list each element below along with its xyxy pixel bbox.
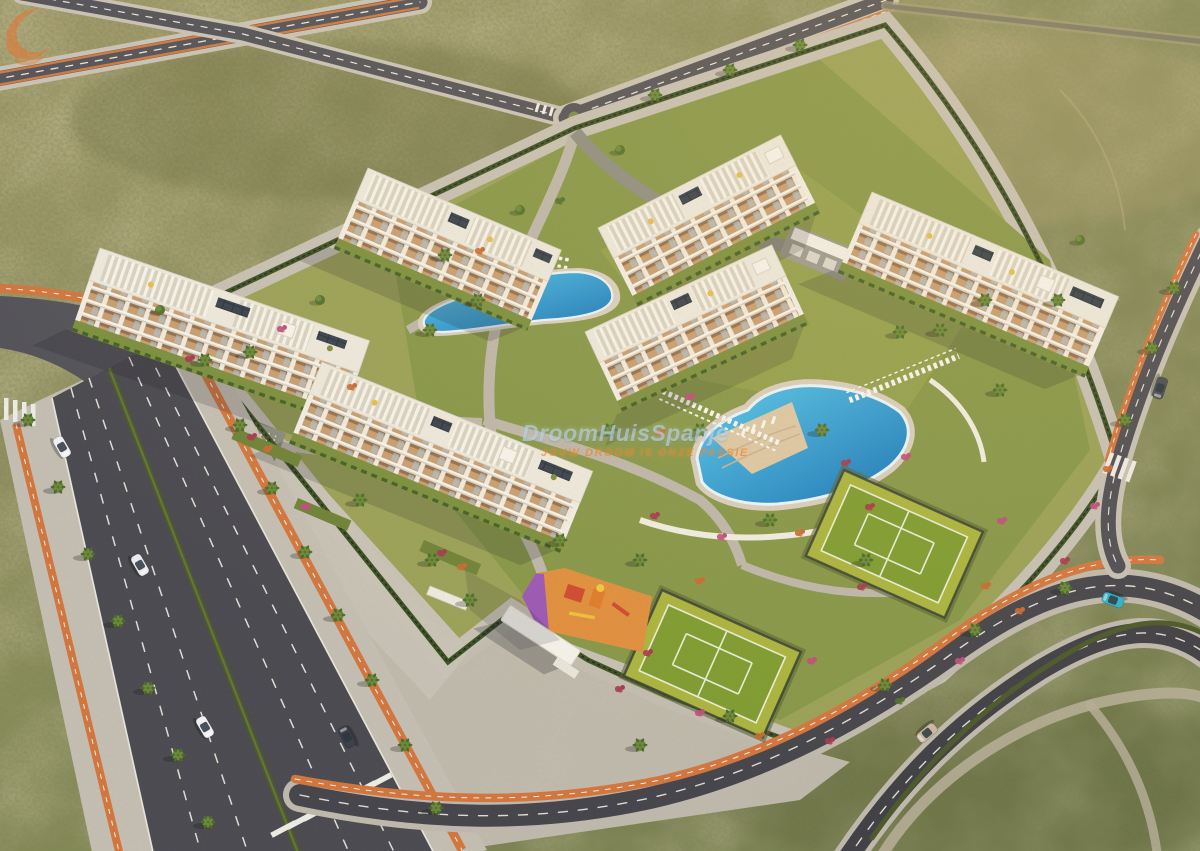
render-canvas [0, 0, 1200, 851]
grain-overlay [0, 0, 1200, 851]
aerial-render: DroomHuisSpanje JOUW DROOM IS ONZE PASSI… [0, 0, 1200, 851]
